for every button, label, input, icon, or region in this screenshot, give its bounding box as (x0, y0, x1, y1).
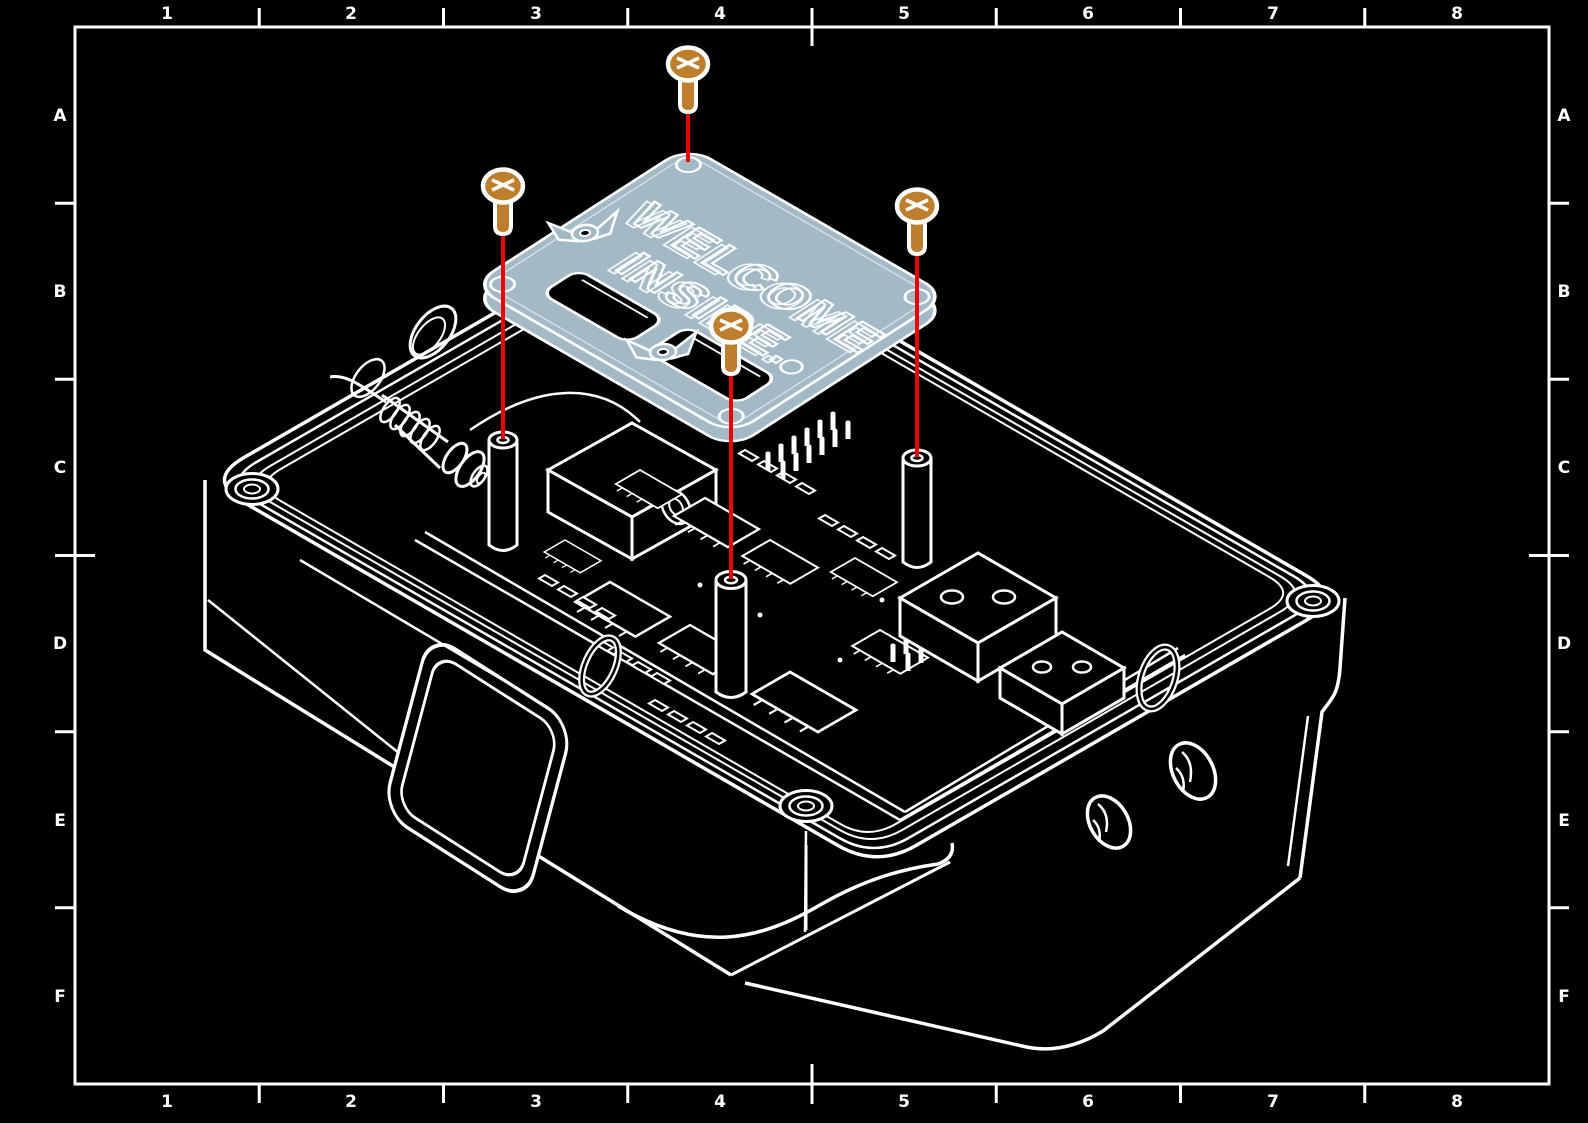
col-label-top-8: 8 (1451, 4, 1463, 24)
col-label-bot-3: 3 (530, 1092, 542, 1112)
col-label-bot-6: 6 (1082, 1092, 1094, 1112)
row-label-left-c: C (54, 458, 66, 478)
row-label-right-d: D (1557, 634, 1571, 654)
col-label-bot-1: 1 (161, 1092, 173, 1112)
col-label-top-4: 4 (714, 4, 726, 24)
corner-boss-south (780, 791, 832, 822)
screw-right (897, 190, 937, 255)
row-label-right-a: A (1557, 106, 1571, 126)
row-label-left-e: E (54, 811, 66, 831)
row-label-right-e: E (1558, 811, 1570, 831)
standoff-right (903, 450, 931, 568)
technical-drawing-canvas: 1 2 3 4 5 6 7 8 1 2 3 4 5 6 7 8 A B C D … (0, 0, 1588, 1123)
col-label-top-5: 5 (898, 4, 910, 24)
screw-left (483, 170, 523, 235)
row-label-right-f: F (1558, 987, 1570, 1007)
col-label-top-2: 2 (345, 4, 357, 24)
standoff-middle (716, 572, 746, 698)
standoff-left (489, 432, 517, 551)
col-label-bot-4: 4 (714, 1092, 726, 1112)
drawing-svg: 1 2 3 4 5 6 7 8 1 2 3 4 5 6 7 8 A B C D … (0, 0, 1588, 1123)
row-label-left-b: B (54, 282, 67, 302)
row-label-left-a: A (53, 106, 67, 126)
row-label-left-f: F (54, 987, 66, 1007)
corner-boss-west (226, 474, 278, 505)
col-label-bot-7: 7 (1267, 1092, 1279, 1112)
screw-top (668, 48, 708, 113)
corner-boss-east (1287, 586, 1339, 617)
row-label-left-d: D (53, 634, 67, 654)
col-label-top-6: 6 (1082, 4, 1094, 24)
col-label-bot-2: 2 (345, 1092, 357, 1112)
row-label-right-b: B (1558, 282, 1571, 302)
col-label-top-1: 1 (161, 4, 173, 24)
col-label-bot-8: 8 (1451, 1092, 1463, 1112)
col-label-bot-5: 5 (898, 1092, 910, 1112)
row-label-right-c: C (1558, 458, 1570, 478)
col-label-top-7: 7 (1267, 4, 1279, 24)
col-label-top-3: 3 (530, 4, 542, 24)
